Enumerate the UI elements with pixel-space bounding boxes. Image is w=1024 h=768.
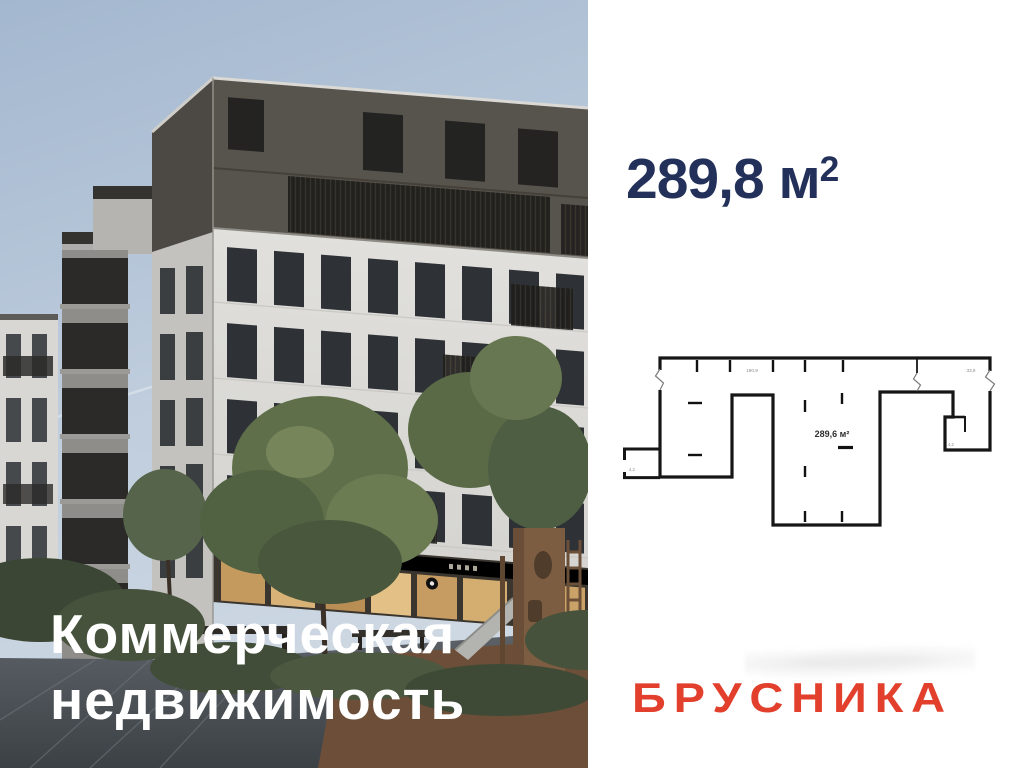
plan-area-label: 289,6 м²: [815, 429, 850, 439]
plan-annex-room: [623, 449, 660, 478]
info-panel: 289,8 м2: [588, 0, 1024, 768]
building-photo: Коммерческая недвижимость: [0, 0, 588, 768]
plan-dim-annex: 4,2: [629, 467, 635, 472]
area-headline: 289,8 м2: [626, 146, 838, 212]
area-value: 289,8: [626, 147, 764, 211]
plan-ticks: [688, 360, 843, 522]
overlay-title: Коммерческая недвижимость: [50, 601, 465, 733]
area-power: 2: [820, 150, 839, 189]
area-unit: м: [764, 147, 820, 211]
overlay-title-line2: недвижимость: [50, 667, 465, 733]
floorplan-svg: 289,6 м² 190,9 33,9 4,2 4,2: [620, 345, 1010, 535]
brand-logo: БРУСНИКА: [632, 674, 953, 722]
plan-dim-top-right: 33,9: [967, 368, 976, 373]
overlay-title-line1: Коммерческая: [50, 601, 465, 667]
plan-outline: [660, 358, 990, 525]
plan-window-marks: [656, 369, 995, 391]
listing-card: Коммерческая недвижимость 289,8 м2: [0, 0, 1024, 768]
plan-dim-bath: 4,2: [948, 442, 954, 447]
plan-dim-top-left: 190,9: [746, 368, 758, 373]
plan-bath-room: [953, 416, 965, 432]
